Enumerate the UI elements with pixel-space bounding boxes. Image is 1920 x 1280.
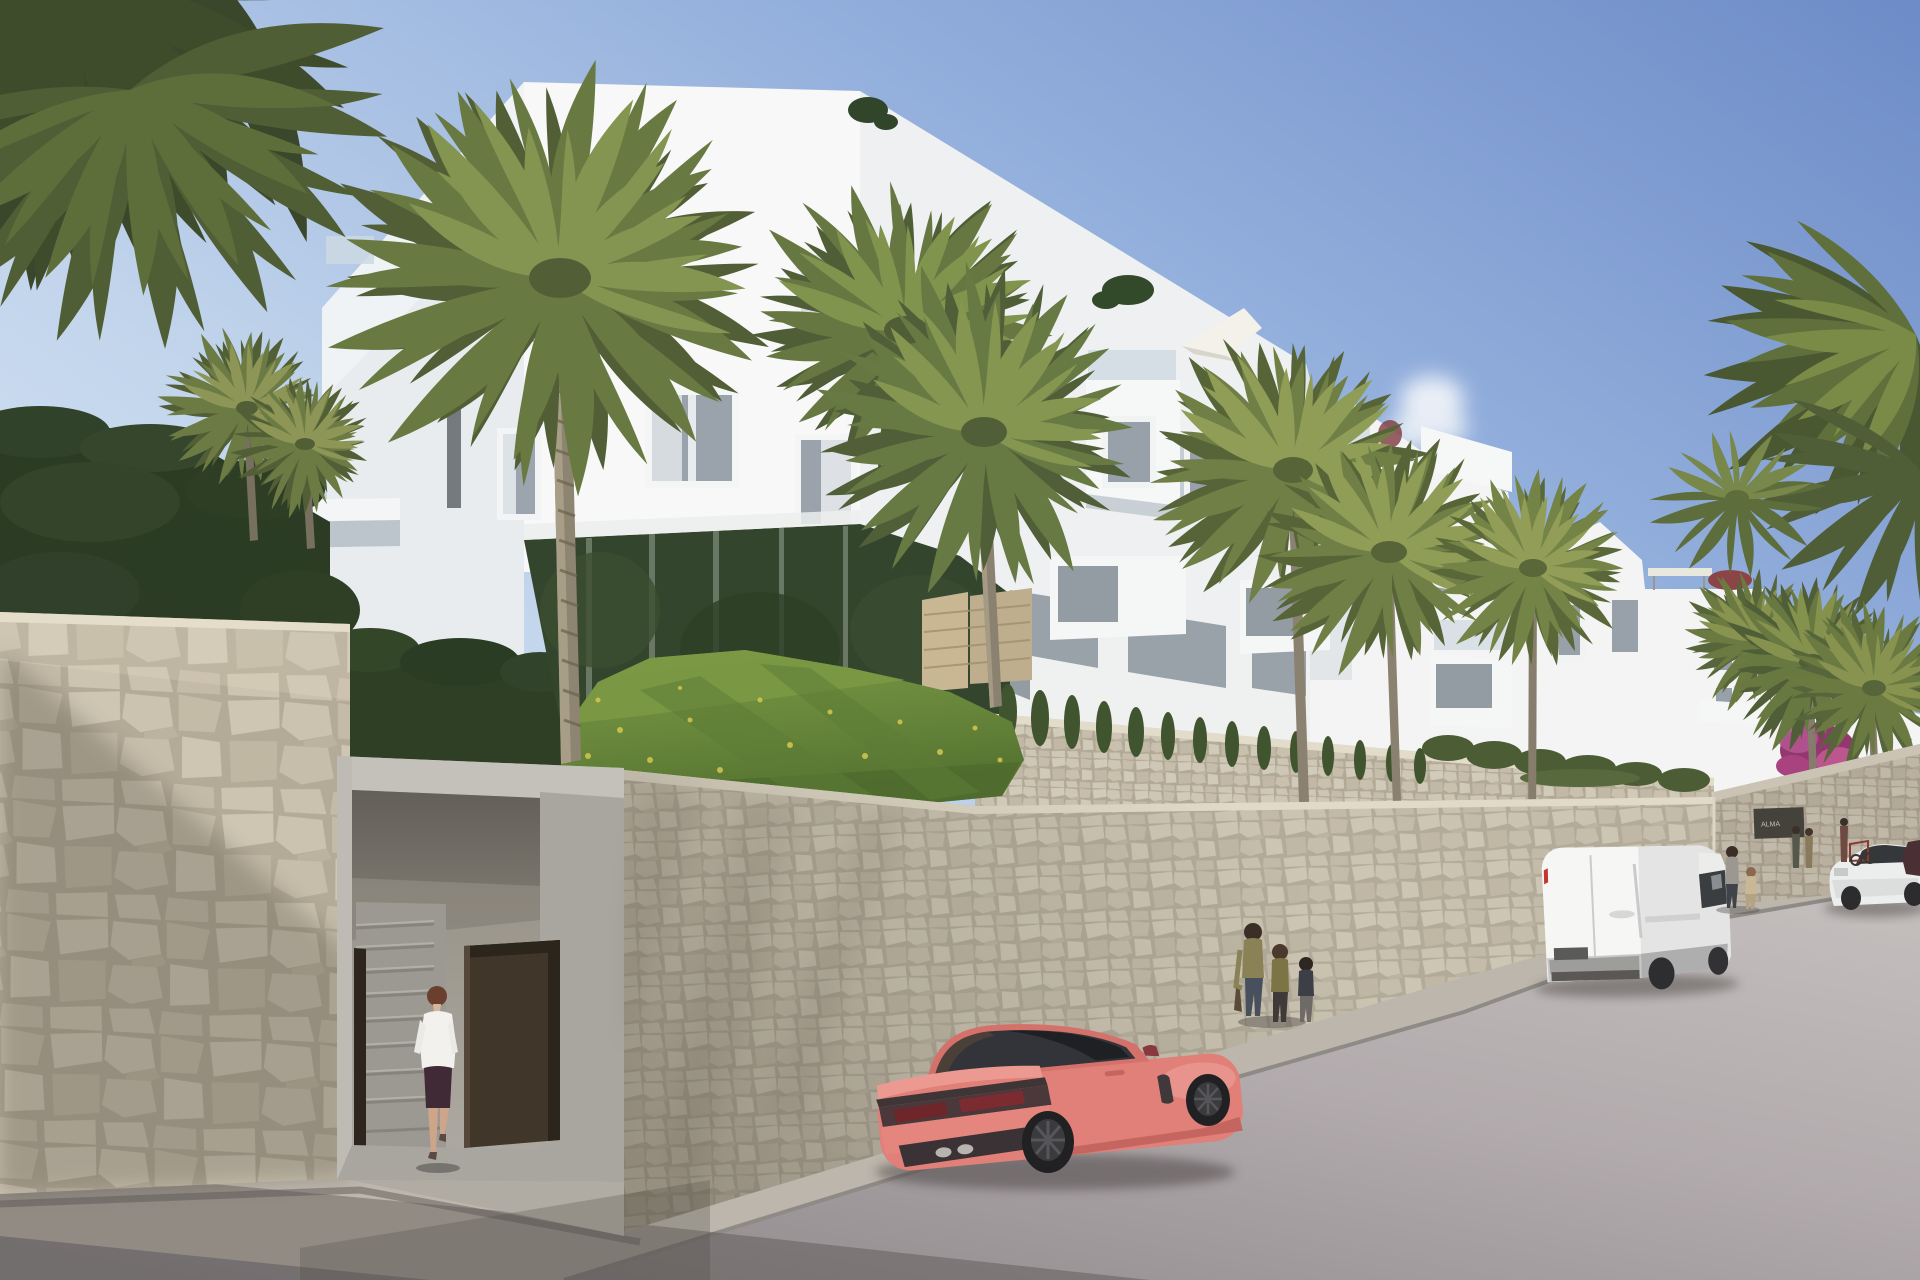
svg-text:ALMA: ALMA bbox=[1761, 821, 1781, 829]
